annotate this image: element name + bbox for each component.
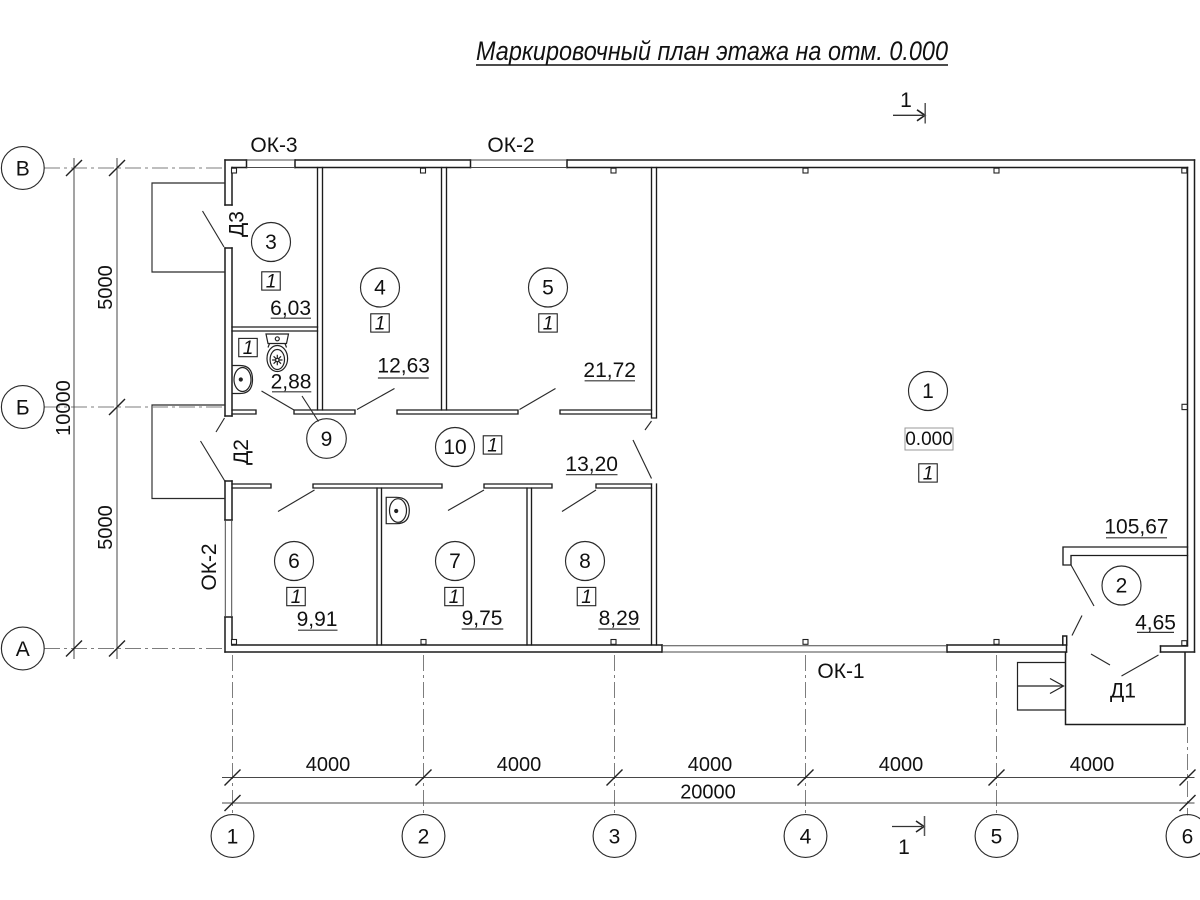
svg-text:1: 1 xyxy=(923,464,934,485)
svg-text:4000: 4000 xyxy=(306,754,351,776)
svg-text:1: 1 xyxy=(922,380,934,403)
svg-text:1: 1 xyxy=(243,338,254,359)
svg-text:7: 7 xyxy=(449,550,461,573)
svg-text:9,91: 9,91 xyxy=(297,608,338,631)
svg-text:9,75: 9,75 xyxy=(462,607,503,630)
svg-text:1: 1 xyxy=(375,314,386,335)
svg-text:5: 5 xyxy=(542,277,554,300)
svg-text:1: 1 xyxy=(227,826,239,849)
svg-text:3: 3 xyxy=(609,826,621,849)
svg-text:1: 1 xyxy=(543,314,554,335)
svg-text:ОК-1: ОК-1 xyxy=(817,660,864,683)
svg-text:4000: 4000 xyxy=(879,754,924,776)
svg-text:6,03: 6,03 xyxy=(270,297,311,320)
svg-text:105,67: 105,67 xyxy=(1104,516,1168,539)
svg-text:4: 4 xyxy=(374,277,386,300)
svg-text:10000: 10000 xyxy=(53,380,75,436)
svg-text:ОК-2: ОК-2 xyxy=(487,134,534,157)
svg-text:5: 5 xyxy=(991,826,1003,849)
svg-text:1: 1 xyxy=(291,587,302,608)
svg-text:Маркировочный план этажа на от: Маркировочный план этажа на отм. 0.000 xyxy=(476,36,948,66)
svg-text:4,65: 4,65 xyxy=(1135,611,1176,634)
svg-text:5000: 5000 xyxy=(95,265,117,310)
svg-text:20000: 20000 xyxy=(680,782,736,804)
svg-text:Д3: Д3 xyxy=(226,211,249,237)
svg-text:4000: 4000 xyxy=(497,754,542,776)
svg-text:5000: 5000 xyxy=(95,505,117,550)
svg-text:0.000: 0.000 xyxy=(905,429,953,450)
svg-text:4000: 4000 xyxy=(1070,754,1115,776)
svg-text:В: В xyxy=(16,158,30,181)
svg-text:ОК-3: ОК-3 xyxy=(250,134,297,157)
svg-text:4000: 4000 xyxy=(688,754,733,776)
svg-text:2,88: 2,88 xyxy=(271,370,312,393)
svg-text:2: 2 xyxy=(1116,575,1128,598)
svg-text:1: 1 xyxy=(898,836,910,859)
svg-text:21,72: 21,72 xyxy=(583,359,636,382)
svg-text:8,29: 8,29 xyxy=(599,607,640,630)
svg-text:3: 3 xyxy=(265,231,277,254)
svg-text:Д1: Д1 xyxy=(1110,680,1136,703)
svg-text:12,63: 12,63 xyxy=(377,355,430,378)
svg-text:9: 9 xyxy=(321,428,333,451)
svg-text:6: 6 xyxy=(288,550,300,573)
svg-text:Б: Б xyxy=(16,397,30,420)
svg-text:2: 2 xyxy=(418,826,430,849)
svg-text:А: А xyxy=(16,638,30,661)
svg-text:1: 1 xyxy=(266,272,277,293)
svg-text:1: 1 xyxy=(487,436,498,457)
svg-text:Д2: Д2 xyxy=(230,439,253,465)
svg-text:10: 10 xyxy=(443,436,466,459)
svg-text:1: 1 xyxy=(449,587,460,608)
svg-text:1: 1 xyxy=(581,587,592,608)
svg-text:8: 8 xyxy=(579,550,591,573)
svg-text:ОК-2: ОК-2 xyxy=(198,543,221,590)
svg-text:4: 4 xyxy=(800,826,812,849)
svg-text:13,20: 13,20 xyxy=(565,453,618,476)
svg-text:6: 6 xyxy=(1182,826,1194,849)
svg-text:1: 1 xyxy=(900,89,912,112)
